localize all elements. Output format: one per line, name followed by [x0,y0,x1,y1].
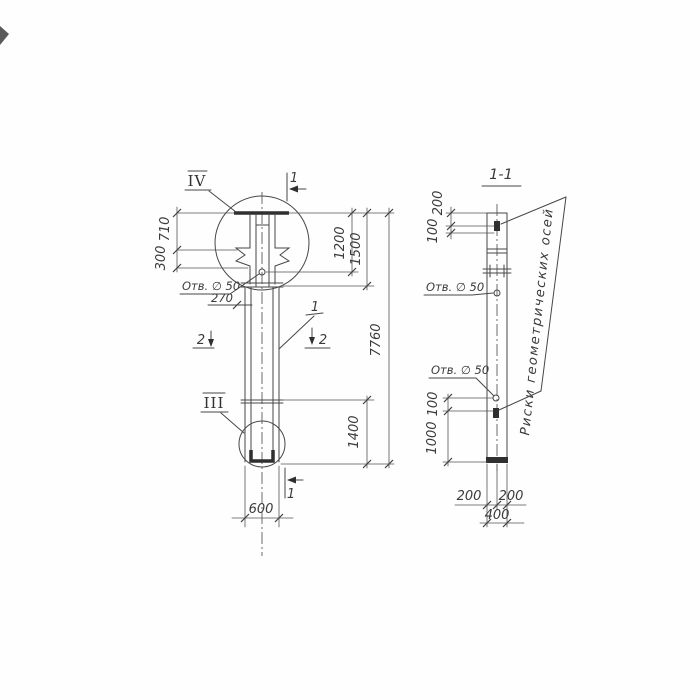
section-hole-label-top-text: Отв. ∅ 50 [426,280,484,294]
dim-1000-text: 1000 [425,421,440,454]
axes-note: Риски геометрических осей [499,197,566,436]
section-hole-label-top: Отв. ∅ 50 [424,280,493,295]
dim-200-right-text: 200 [499,489,524,504]
column-head-outline [250,214,275,287]
section-mark-1-bottom: 1 [285,468,303,502]
section-mark-1-top: 1 [287,171,306,201]
section-hole-label-bottom: Отв. ∅ 50 [429,363,494,396]
section-hole-label-bottom-text: Отв. ∅ 50 [431,363,489,377]
dim-400-text: 400 [485,508,510,523]
section-2-right-label: 2 [319,333,327,348]
drawing-page: IV III 1 1 2 [0,0,700,700]
dims-bottom-200-200-400: 200 200 400 [455,464,526,527]
part-leader-1: 1 [279,300,323,349]
detail-marker-IV: IV [185,171,236,212]
section-2-left-label: 2 [197,333,205,348]
dim-200-left-text: 200 [457,489,482,504]
dims-710-300: 710 300 [154,207,248,272]
detail-marker-IV-label: IV [188,172,207,190]
collar-flange-left [236,248,250,266]
dim-710-text: 710 [158,217,173,242]
collar-flange-right [275,248,289,266]
section-mark-2-right: 2 [305,328,330,348]
section-1-bottom-label: 1 [287,487,295,502]
dims-right-stack: 1200 1500 1400 7760 [266,208,394,468]
dim-1500-text: 1500 [349,232,364,265]
section-bottom-band [486,457,508,463]
section-1-top-label: 1 [290,171,298,186]
dim-1400-text: 1400 [347,415,362,448]
dim-100-top-text: 100 [426,219,441,244]
dim-600: 600 [232,466,293,527]
pile-column-drawing: IV III 1 1 2 [0,0,700,700]
axes-note-text: Риски геометрических осей [518,207,557,436]
scan-artifact [0,26,9,45]
left-view: IV III 1 1 2 [154,171,394,556]
section-mark-2-left: 2 [193,331,214,348]
axis-mark-bottom [493,408,499,418]
dim-7760-text: 7760 [369,323,384,356]
part-leader-label: 1 [311,300,319,315]
dims-200-100-top: 200 100 [426,191,494,244]
axis-mark-top [494,221,500,231]
dim-600-text: 600 [249,502,274,517]
detail-marker-III: III [201,393,244,433]
section-view-1-1: 1-1 Отв. ∅ 50 [424,167,566,527]
detail-marker-III-label: III [204,394,225,412]
dim-1200-text: 1200 [333,226,348,259]
dim-200-top-text: 200 [431,191,446,216]
dim-300-text: 300 [154,246,169,271]
dim-100-bottom-text: 100 [426,392,441,417]
dims-100-1000-bottom: 100 1000 [425,392,493,466]
dim-270-text: 270 [211,291,233,305]
section-title: 1-1 [489,167,513,183]
